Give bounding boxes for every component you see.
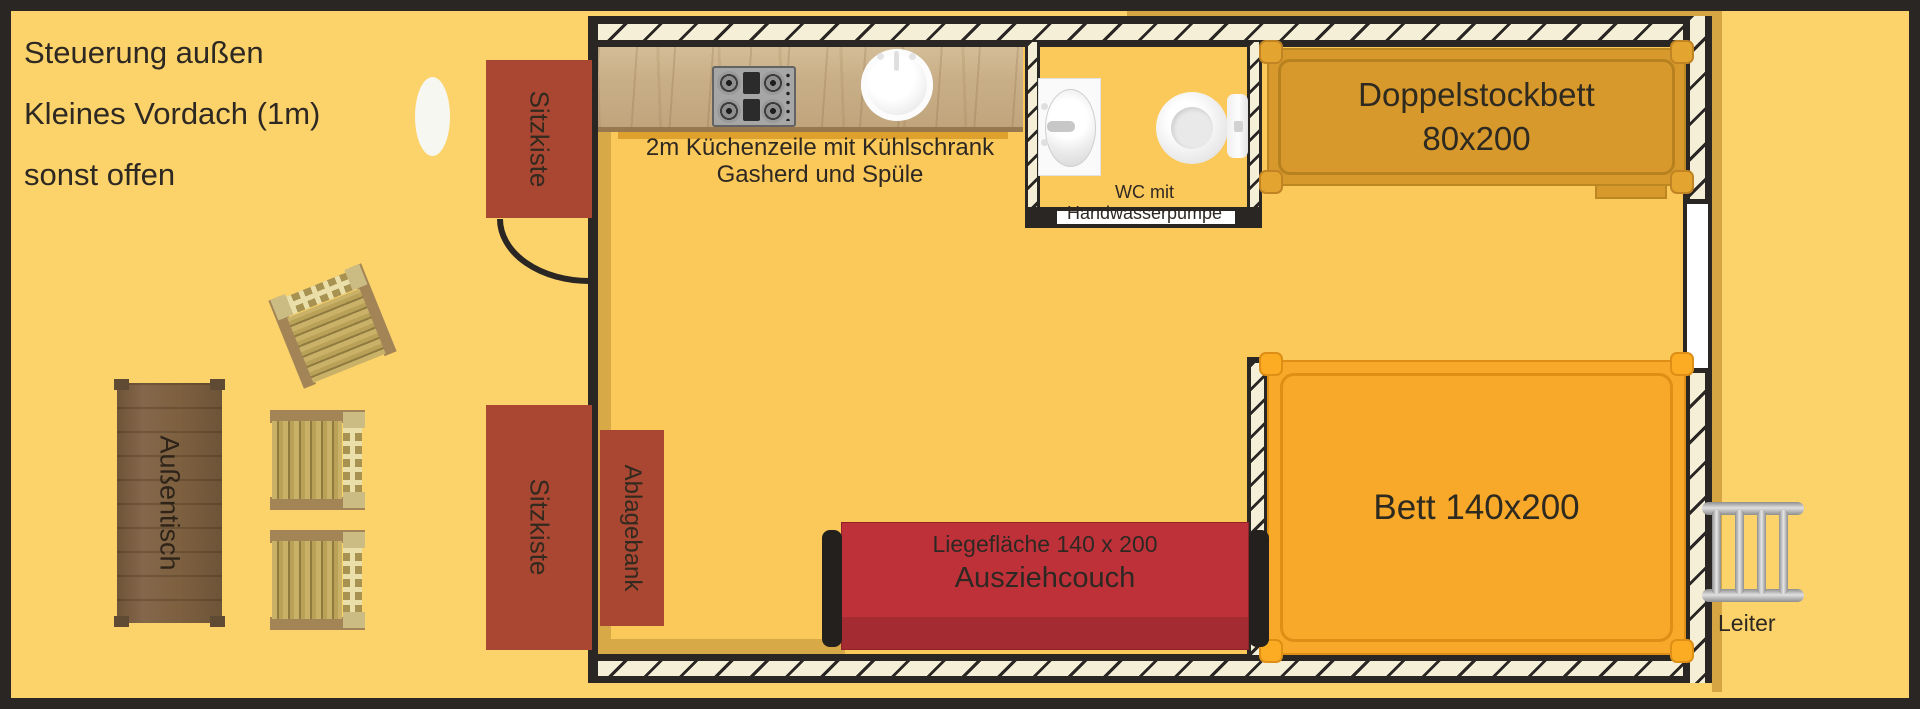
faucet-handle [909, 53, 916, 60]
burner-icon [761, 71, 785, 95]
couch-label: Liegefläche 140 x 200 Ausziehcouch [842, 523, 1248, 649]
couch-label-line-2: Ausziehcouch [842, 558, 1248, 598]
bunk-bed: Doppelstockbett 80x200 [1267, 48, 1686, 186]
wc-label: WC mit Handwasserpumpe [1042, 182, 1247, 224]
burner-icon [717, 99, 741, 123]
bunk-bed-label-line-2: 80x200 [1269, 117, 1684, 161]
stove-icon [712, 66, 796, 127]
outdoor-chair-1 [268, 263, 396, 389]
ladder-bar [1757, 510, 1766, 594]
ladder-bar [1712, 510, 1721, 594]
outdoor-chair-3 [270, 530, 365, 630]
outdoor-table-label: Außentisch [154, 435, 185, 570]
faucet-icon [894, 51, 899, 71]
stove-grate [743, 99, 760, 121]
storage-bench-label: Ablagebank [618, 465, 646, 592]
white-oval-marker [415, 77, 450, 156]
roof-shadow-top [1127, 5, 1722, 16]
couch-label-line-1: Liegefläche 140 x 200 [842, 530, 1248, 558]
wc-sink-icon [1038, 78, 1101, 176]
counter-grain [598, 47, 1023, 127]
bunk-bed-label: Doppelstockbett 80x200 [1269, 50, 1684, 184]
chair-slats [272, 541, 342, 619]
ladder-label: Leiter [1718, 610, 1814, 637]
double-bed-label: Bett 140x200 [1269, 362, 1684, 653]
toilet-bowl-inner [1171, 107, 1213, 149]
seat-chest-bottom-label: Sitzkiste [524, 479, 555, 576]
note-line-2: Kleines Vordach (1m) [24, 83, 454, 144]
pull-out-couch: Liegefläche 140 x 200 Ausziehcouch [841, 522, 1249, 650]
table-corner-tab [114, 379, 129, 390]
kitchen-label-line-1: 2m Küchenzeile mit Kühlschrank [615, 134, 1025, 161]
kitchen-label-line-2: Gasherd und Spüle [615, 161, 1025, 188]
table-corner-tab [114, 616, 129, 627]
seat-chest-top-label: Sitzkiste [524, 91, 555, 188]
double-bed: Bett 140x200 [1267, 360, 1686, 655]
burner-icon [761, 99, 785, 123]
ladder-bar [1735, 510, 1744, 594]
table-corner-tab [210, 379, 225, 390]
floor-shadow [598, 639, 845, 655]
note-line-1: Steuerung außen [24, 22, 454, 83]
chair-slats [272, 421, 342, 499]
faucet-handle [877, 53, 884, 60]
plan-notes: Steuerung außen Kleines Vordach (1m) son… [24, 22, 454, 205]
burner-icon [717, 71, 741, 95]
chair-corner [343, 612, 365, 628]
bunk-bed-step [1595, 184, 1667, 199]
window-gap-east [1683, 199, 1712, 373]
toilet-flush-button [1234, 121, 1243, 132]
couch-armrest-left [822, 530, 842, 647]
note-line-3: sonst offen [24, 144, 454, 205]
couch-armrest-right [1249, 530, 1269, 647]
wc-faucet-icon [1047, 121, 1075, 132]
floor-plan-canvas: Steuerung außen Kleines Vordach (1m) son… [0, 0, 1920, 709]
wall-south [588, 654, 1712, 683]
ladder-bar [1779, 510, 1788, 594]
wc-faucet-handle [1041, 139, 1048, 146]
chair-corner [343, 532, 365, 548]
kitchen-counter [598, 47, 1023, 127]
wall-north [588, 16, 1712, 47]
chair-corner [343, 412, 365, 428]
stove-knobs [783, 71, 793, 121]
outdoor-chair-2 [270, 410, 365, 510]
chair-corner [343, 492, 365, 508]
table-corner-tab [210, 616, 225, 627]
stove-grate [743, 72, 760, 94]
kitchen-label: 2m Küchenzeile mit Kühlschrank Gasherd u… [615, 134, 1025, 188]
bunk-bed-label-line-1: Doppelstockbett [1269, 73, 1684, 117]
wc-faucet-handle [1041, 103, 1048, 110]
